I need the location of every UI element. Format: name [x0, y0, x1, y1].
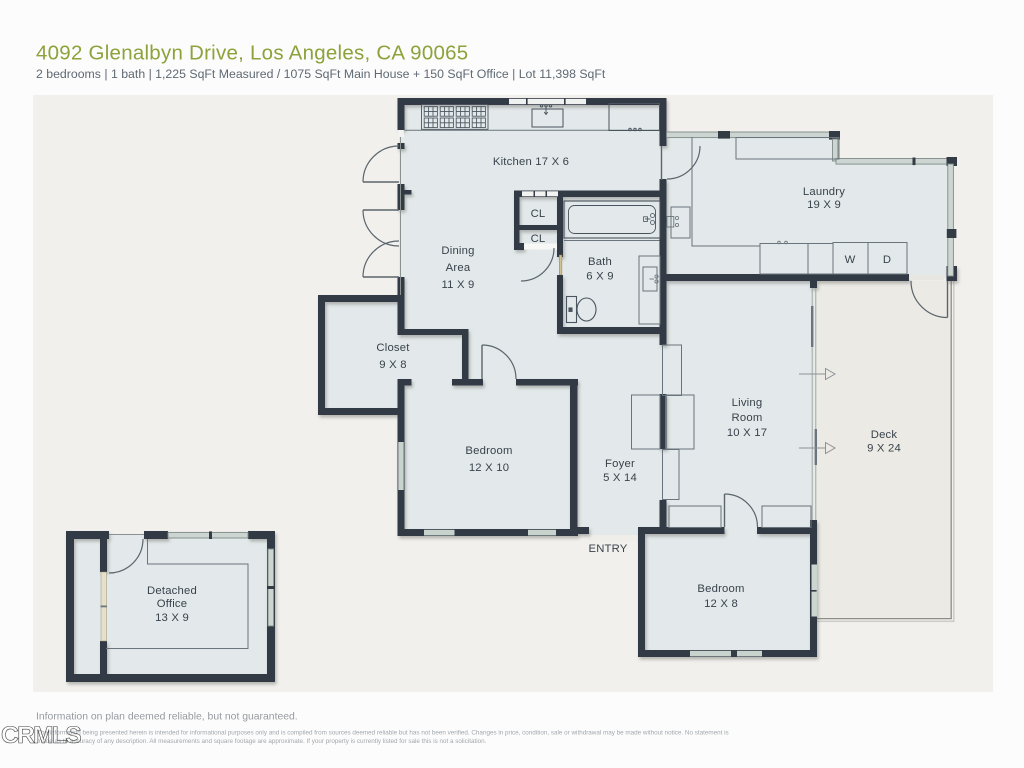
svg-text:9 X 8: 9 X 8	[379, 359, 406, 371]
svg-text:Dining: Dining	[441, 245, 474, 257]
svg-text:13 X 9: 13 X 9	[155, 612, 189, 624]
svg-text:Information on plan deemed rel: Information on plan deemed reliable, but…	[36, 712, 298, 723]
svg-text:made as to accuracy of any des: made as to accuracy of any description. …	[37, 738, 487, 745]
svg-text:5 X 14: 5 X 14	[603, 472, 637, 484]
svg-text:CRMLS: CRMLS	[1, 722, 81, 749]
svg-text:Foyer: Foyer	[605, 458, 635, 470]
svg-text:2 bedrooms | 1 bath | 1,225 Sq: 2 bedrooms | 1 bath | 1,225 SqFt Measure…	[36, 67, 606, 81]
svg-text:9 X 24: 9 X 24	[867, 443, 901, 455]
svg-text:4092 Glenalbyn Drive, Los Ange: 4092 Glenalbyn Drive, Los Angeles, CA 90…	[36, 42, 468, 65]
svg-text:ENTRY: ENTRY	[588, 543, 627, 555]
svg-text:Detached: Detached	[147, 585, 197, 597]
svg-text:The information being presente: The information being presented herein i…	[37, 730, 729, 737]
svg-text:Living: Living	[732, 397, 763, 409]
svg-text:11 X 9: 11 X 9	[441, 279, 474, 291]
svg-text:Office: Office	[157, 598, 188, 610]
svg-text:CL: CL	[531, 233, 546, 245]
svg-text:12 X 8: 12 X 8	[704, 598, 738, 610]
svg-text:CL: CL	[531, 208, 546, 220]
svg-text:Room: Room	[732, 412, 763, 424]
svg-text:Bedroom: Bedroom	[465, 445, 512, 457]
svg-text:Kitchen 17 X 6: Kitchen 17 X 6	[493, 156, 569, 168]
svg-text:6 X 9: 6 X 9	[586, 271, 613, 283]
svg-text:D: D	[883, 254, 891, 266]
svg-text:10 X 17: 10 X 17	[727, 427, 767, 439]
svg-text:19 X 9: 19 X 9	[807, 199, 841, 211]
svg-text:Bedroom: Bedroom	[697, 583, 744, 595]
svg-text:W: W	[845, 254, 856, 266]
svg-text:12 X 10: 12 X 10	[469, 462, 509, 474]
svg-text:Area: Area	[446, 262, 471, 274]
svg-text:Bath: Bath	[588, 256, 612, 268]
svg-text:Laundry: Laundry	[803, 186, 845, 198]
svg-text:Deck: Deck	[871, 429, 898, 441]
svg-text:Closet: Closet	[376, 342, 410, 354]
